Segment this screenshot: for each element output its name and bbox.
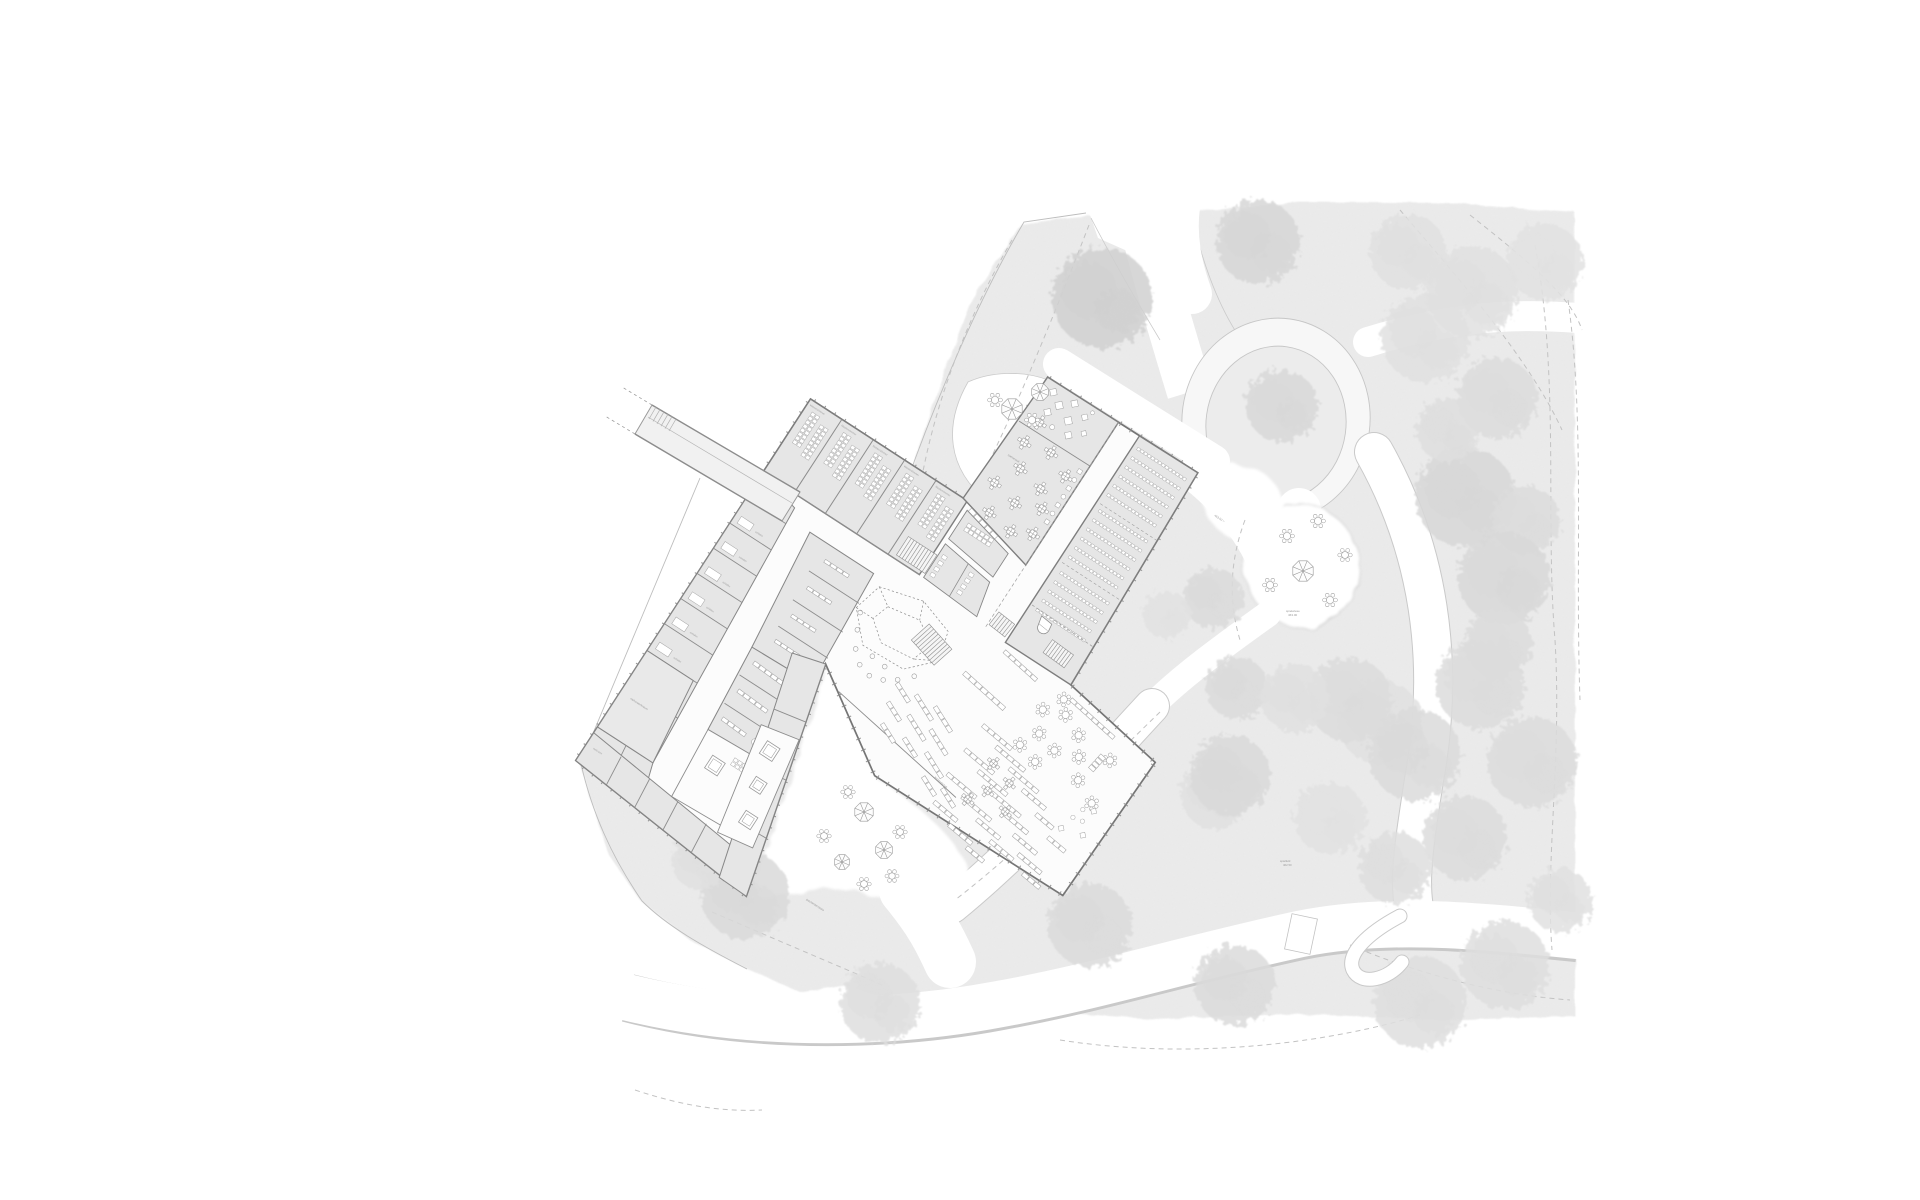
svg-text:462.50: 462.50 [1283,863,1292,867]
svg-text:463.00: 463.00 [1288,613,1298,617]
